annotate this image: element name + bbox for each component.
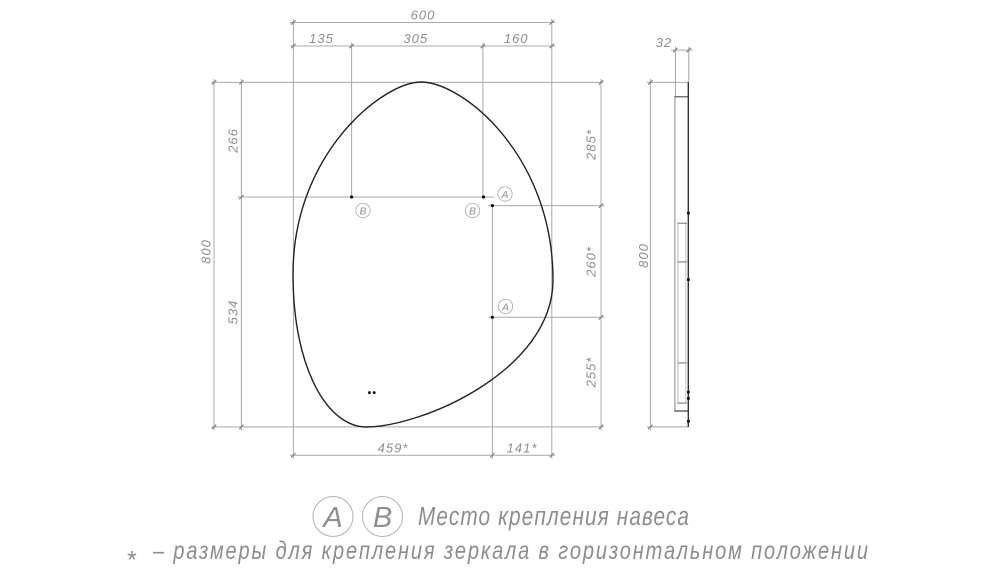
svg-text:Место крепления навеса: Место крепления навеса [418, 502, 689, 531]
svg-text:B: B [359, 205, 366, 217]
svg-text:534: 534 [226, 300, 241, 325]
svg-text:– размеры для крепления зеркал: – размеры для крепления зеркала в горизо… [152, 537, 868, 565]
svg-text:600: 600 [411, 8, 436, 23]
svg-text:266: 266 [226, 128, 241, 154]
svg-text:260*: 260* [584, 246, 599, 278]
svg-text:160: 160 [504, 31, 529, 46]
svg-text:B: B [373, 502, 392, 534]
svg-text:141*: 141* [507, 441, 538, 456]
svg-text:135: 135 [309, 31, 334, 46]
svg-text:459*: 459* [378, 441, 409, 456]
svg-text:305: 305 [403, 31, 428, 46]
svg-text:32: 32 [656, 35, 672, 50]
svg-text:A: A [500, 189, 508, 201]
svg-text:*: * [126, 547, 137, 570]
svg-text:255*: 255* [584, 357, 599, 389]
svg-text:B: B [469, 205, 476, 217]
svg-text:285*: 285* [584, 129, 599, 161]
svg-text:800: 800 [636, 243, 651, 268]
svg-text:A: A [501, 301, 509, 313]
svg-text:A: A [321, 502, 342, 534]
svg-text:800: 800 [199, 239, 214, 264]
